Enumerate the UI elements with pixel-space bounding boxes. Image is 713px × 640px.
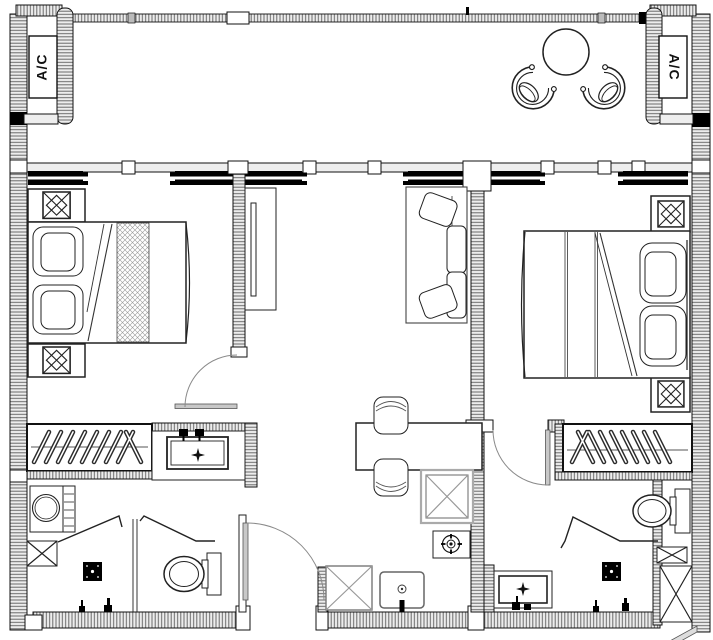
tv-console [245,188,276,310]
floor-drain [83,562,102,581]
door-entrance [243,523,324,600]
shower-screen [140,516,215,541]
bottom-wall [484,612,660,628]
round-table [543,29,589,75]
bedroom-left [28,189,190,377]
ac-closet-right: A/C [646,5,696,124]
mullion [368,161,381,174]
corner-step [25,615,42,630]
door-bedroom-left [175,355,237,409]
dining-table [356,423,482,470]
left-wall-joint [10,470,27,482]
floor-plan-canvas: A/C A/C [0,0,713,640]
parapet-tick [598,13,605,23]
bathroom-right [494,489,692,622]
sofa [406,187,467,323]
corridor-left [27,424,245,566]
tub-chair [578,62,634,118]
right-wall-block [692,113,710,127]
bathroom-left [58,516,221,612]
back-cushion [447,226,466,273]
left-wall [10,14,27,630]
floor-fixture [593,598,629,612]
double-bed [28,222,190,343]
parapet-tick [128,13,135,23]
pillow [33,285,83,334]
nightstand [651,196,690,232]
nightstand [651,377,690,412]
wardrobe-left [27,424,160,479]
washing-machine [30,486,63,532]
balcony-furniture [504,29,634,117]
tap [512,602,520,610]
stove-burner [433,531,470,558]
nightstand [28,344,85,377]
parapet-tick [466,7,469,15]
balcony-parapet [64,14,646,22]
mullion [303,161,316,174]
window-pair [618,171,688,185]
tap [179,429,188,436]
tap [195,429,204,436]
double-bed [522,231,691,378]
floor-fixture [79,598,112,612]
mullion [541,161,554,174]
shower-glass [133,519,137,612]
wardrobe-right [555,424,692,480]
wall-cap [228,161,248,174]
bed-runner [117,223,149,342]
wall-bedroom-right [471,190,484,612]
right-wall-joint [692,160,710,173]
cabinet-box [326,566,372,610]
ac-label-right: A/C [666,53,682,80]
floor-drain [602,562,621,581]
toilet [164,553,221,595]
tap [524,604,531,610]
vanity-wall [152,423,257,431]
pillow [640,306,686,366]
ac-sill [660,114,693,124]
kitchen-sink [380,572,424,612]
window-pair [487,171,545,185]
bottom-wall [33,612,236,628]
living-room [245,187,467,323]
window-pair [28,171,88,185]
window-wall [27,161,692,174]
shelf-column [63,486,75,532]
dining-chair [374,397,408,434]
floor-plan: A/C A/C [0,0,713,640]
duct-shaft [657,547,692,622]
dining-chair [374,459,408,496]
bathroom-right-stub [484,565,494,612]
ac-wall [57,8,73,124]
vanity-right [494,571,552,610]
parapet-joint [227,12,249,24]
mullion [122,161,135,174]
wall-bedroom-left [233,174,245,354]
right-wall [692,14,710,632]
window-pair [245,171,307,185]
vanity-wall [245,423,257,487]
refrigerator-box [421,470,473,523]
bedroom-right [522,196,691,412]
vanity-left [152,429,245,480]
shaft-flap [668,626,697,640]
bottom-wall [328,612,468,628]
ac-label-left: A/C [34,53,50,80]
mullion [598,161,611,174]
pillow [33,227,83,276]
nightstand [28,189,85,222]
ac-wall [16,5,62,16]
left-wall-joint [10,160,27,173]
pillow [640,243,686,303]
ac-sill [24,114,58,124]
duct-shaft [27,541,57,566]
window-pair [403,171,468,185]
faucet [400,600,405,612]
door-bedroom-right [493,430,550,485]
corridor-right [555,424,692,480]
